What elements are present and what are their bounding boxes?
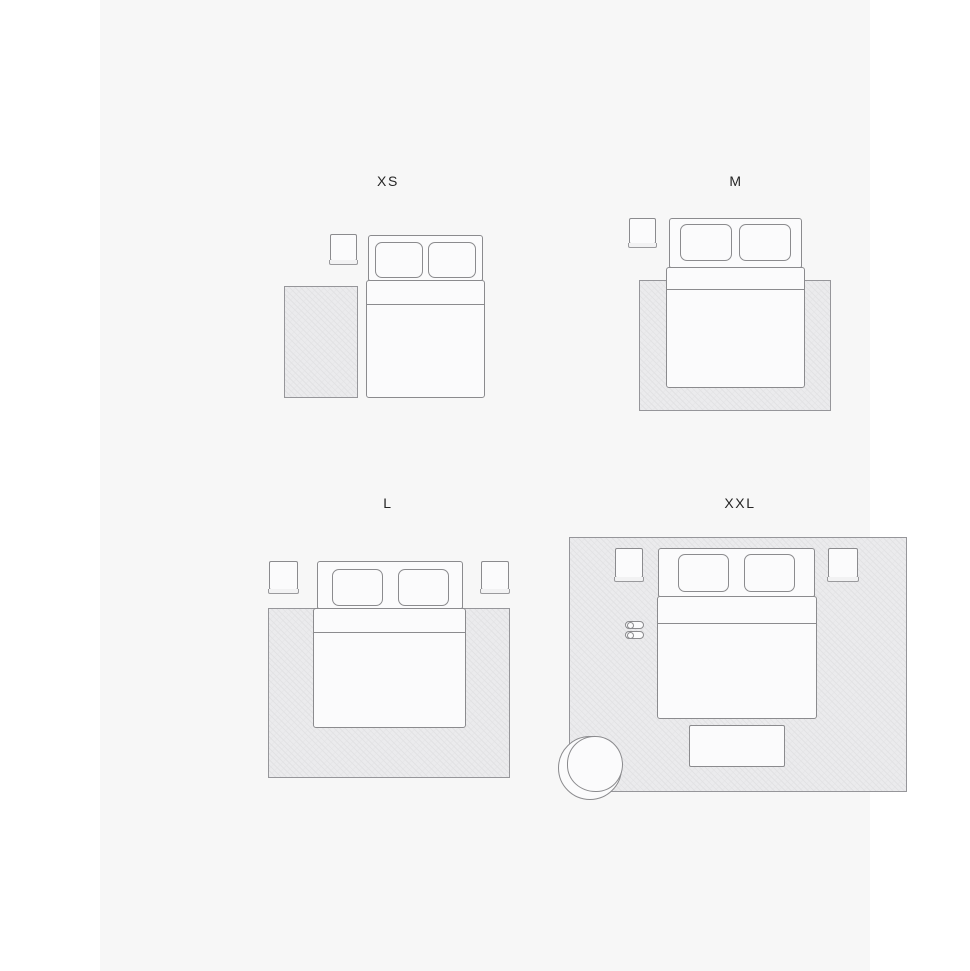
pillow-icon: [332, 569, 383, 606]
bed-icon: [313, 561, 466, 728]
pillow-icon: [739, 224, 791, 261]
slipper-icon: [625, 621, 644, 629]
duvet-fold-line: [367, 304, 484, 305]
bed-headboard: [317, 561, 463, 609]
size-label-l: L: [383, 495, 392, 511]
bench-icon: [689, 725, 785, 767]
bed-duvet: [657, 596, 817, 719]
diagram-background: XS M: [100, 0, 870, 971]
nightstand-icon: [629, 218, 656, 244]
nightstand-icon: [615, 548, 643, 578]
pillow-icon: [678, 554, 729, 592]
rug-size-guide: XS M: [0, 0, 970, 971]
size-label-xs: XS: [377, 173, 399, 189]
bed-headboard: [669, 218, 802, 268]
rug-xs: [284, 286, 358, 398]
pillow-icon: [680, 224, 732, 261]
bed-icon: [666, 218, 805, 388]
armchair-seat-icon: [567, 736, 623, 792]
slipper-icon: [625, 631, 644, 639]
size-label-xxl: XXL: [724, 495, 755, 511]
size-label-m: M: [729, 173, 742, 189]
duvet-fold-line: [667, 289, 804, 290]
bed-duvet: [666, 267, 805, 388]
pillow-icon: [375, 242, 423, 278]
nightstand-icon: [269, 561, 298, 590]
bed-icon: [366, 235, 485, 398]
bed-headboard: [368, 235, 483, 281]
bed-duvet: [313, 608, 466, 728]
duvet-fold-line: [658, 623, 816, 624]
nightstand-icon: [828, 548, 858, 578]
pillow-icon: [398, 569, 449, 606]
nightstand-icon: [481, 561, 509, 590]
pillow-icon: [428, 242, 476, 278]
pillow-icon: [744, 554, 795, 592]
bed-headboard: [658, 548, 815, 597]
duvet-fold-line: [314, 632, 465, 633]
slippers-icon: [625, 621, 647, 640]
bed-icon: [657, 548, 817, 719]
nightstand-icon: [330, 234, 357, 261]
bed-duvet: [366, 280, 485, 398]
